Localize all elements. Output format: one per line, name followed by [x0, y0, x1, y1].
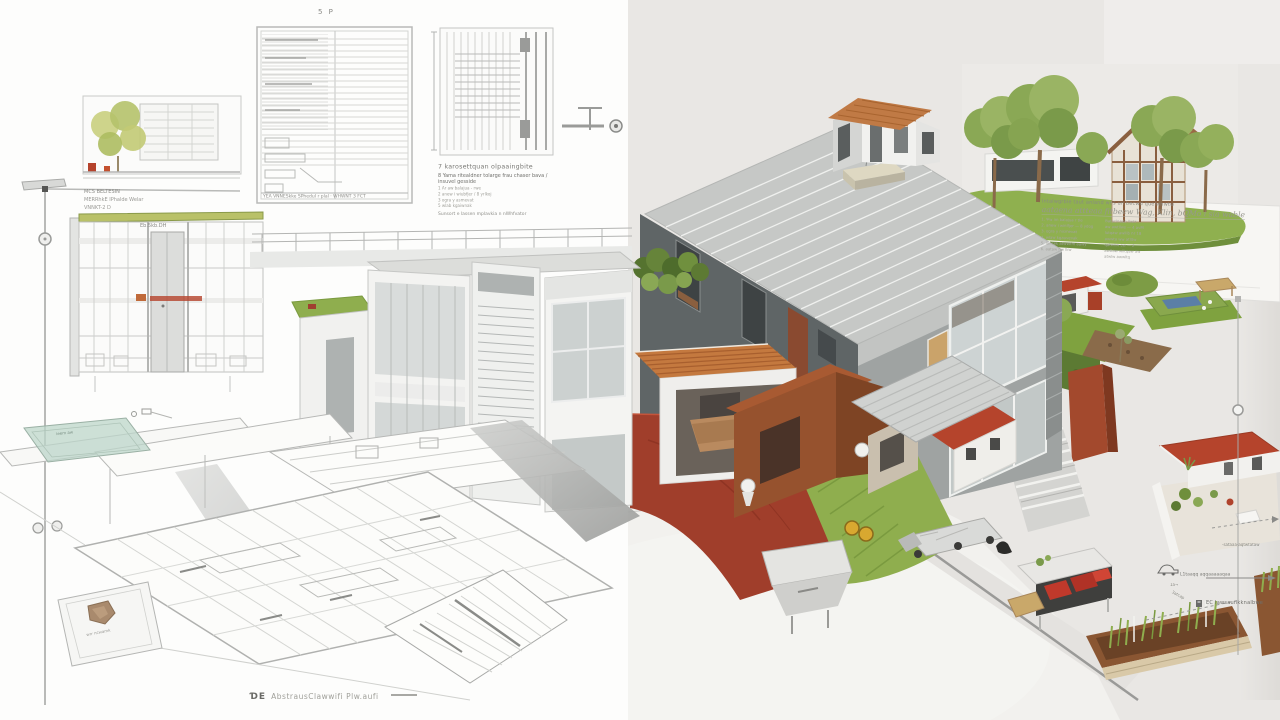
section-label-2: MERRhkE IPhalde Welar: [84, 197, 143, 203]
plan-caption-prefix: ƊE: [250, 692, 266, 702]
section-label-1: MCS BELTESIN: [84, 189, 120, 195]
callout-car: L1taaqq aqqaaaaaqaa: [1180, 572, 1230, 577]
schedule-footer: YEA VNNESkke SPhedul r plal · WHWNT 3 FC…: [263, 194, 366, 199]
scene-art: [0, 0, 1280, 720]
island-note-col-a: 1. Ψw im balajua r tle 2. anew i winlfje…: [1040, 217, 1093, 260]
spec-notes-subheading: 8 Yama ritealdner tolarge frau chaser ba…: [438, 172, 564, 184]
note-line: atwlw awwltq: [1104, 254, 1143, 261]
window-detail-drawing: [431, 28, 553, 155]
roof-pavilion: [828, 98, 940, 172]
elevation-label: Eb.5kb.DH: [140, 223, 166, 229]
elevation-drawing: [70, 212, 263, 392]
corten-wall: [1068, 364, 1118, 462]
plan-caption-rule: [391, 694, 417, 696]
island-note-col-b: Bataclnade llwtr aw awtllws — 4 avM lutq…: [1104, 219, 1144, 261]
section-drawing: [83, 96, 241, 178]
callout-ec: EC Iawsaunkknalbwe: [1206, 600, 1263, 606]
section-label-3: VNNKT-2 D: [84, 205, 111, 211]
island-note: Intalwgrble taut anland wes un becwd que…: [1040, 198, 1267, 264]
spec-notes: 7 karosettquan olpaaingbite 8 Yama ritea…: [438, 163, 564, 216]
callout-top: -sataaa-aqtwtataw: [1222, 543, 1259, 547]
spec-note-line: 5 wlab kgaiwnak: [438, 204, 564, 210]
spec-notes-heading: 7 karosettquan olpaaingbite: [438, 163, 564, 170]
spec-notes-footer: Sunsort e lassen mplavkia n nWhfvator: [438, 211, 564, 216]
plan-caption: ƊE AbstrausClawwifi Plw.aufi: [250, 684, 417, 703]
blueprint-scene: [0, 0, 640, 720]
callout-small: 1a¬: [1170, 583, 1178, 587]
architectural-collage: 5 P MCS BELTESIN MERRhkE IPhalde Welar V…: [0, 0, 1280, 720]
schedule-sheet: [257, 27, 412, 203]
patio-pavilion: [1152, 432, 1280, 560]
plan-caption-text: AbstrausClawwifi Plw.aufi: [271, 692, 378, 701]
sheet-top-label: 5 P: [318, 8, 335, 16]
